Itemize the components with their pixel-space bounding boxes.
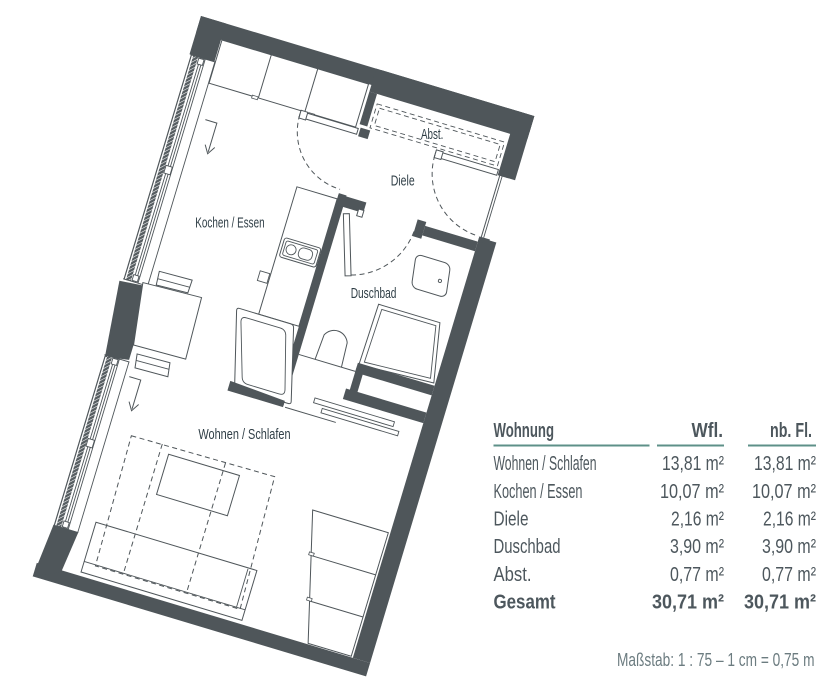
svg-text:0,77 m²: 0,77 m² [762,564,816,586]
svg-text:2,16 m²: 2,16 m² [671,509,724,531]
svg-text:Abst.: Abst. [494,564,532,586]
svg-text:3,90 m²: 3,90 m² [670,536,724,558]
svg-text:Kochen / Essen: Kochen / Essen [494,481,583,503]
svg-text:Gesamt: Gesamt [494,592,556,614]
svg-text:30,71 m²: 30,71 m² [744,592,816,614]
svg-text:Wohnen / Schlafen: Wohnen / Schlafen [198,426,290,443]
svg-text:Duschbad: Duschbad [351,285,397,302]
svg-text:Kochen / Essen: Kochen / Essen [195,215,264,232]
svg-text:Maßstab: 1 : 75 – 1 cm = 0: Maßstab: 1 : 75 – 1 cm = 0,75 m [617,650,815,670]
svg-text:Wohnen / Schlafen: Wohnen / Schlafen [494,453,597,475]
svg-text:Wohnung: Wohnung [494,420,555,442]
svg-text:0,77 m²: 0,77 m² [670,564,724,586]
svg-text:nb. Fl.: nb. Fl. [770,420,812,442]
svg-text:Diele: Diele [494,509,529,531]
svg-text:10,07 m²: 10,07 m² [752,481,816,503]
svg-text:10,07 m²: 10,07 m² [660,481,724,503]
svg-text:Duschbad: Duschbad [494,536,561,558]
svg-text:Diele: Diele [391,173,415,190]
svg-text:2,16 m²: 2,16 m² [763,509,816,531]
svg-text:30,71 m²: 30,71 m² [652,592,724,614]
svg-text:Wfl.: Wfl. [692,420,724,442]
svg-text:13,81 m²: 13,81 m² [662,453,724,475]
svg-text:13,81 m²: 13,81 m² [754,453,816,475]
svg-text:Abst.: Abst. [421,126,443,143]
svg-text:3,90 m²: 3,90 m² [762,536,816,558]
